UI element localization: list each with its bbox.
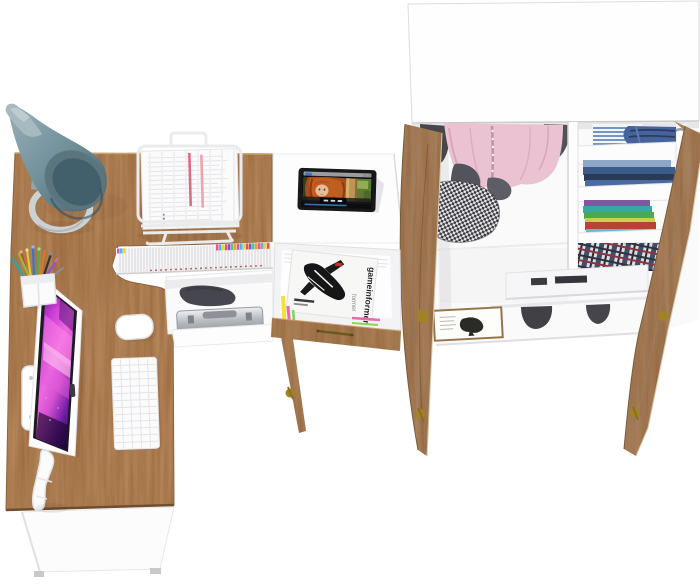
svg-text:former: former — [350, 294, 356, 311]
